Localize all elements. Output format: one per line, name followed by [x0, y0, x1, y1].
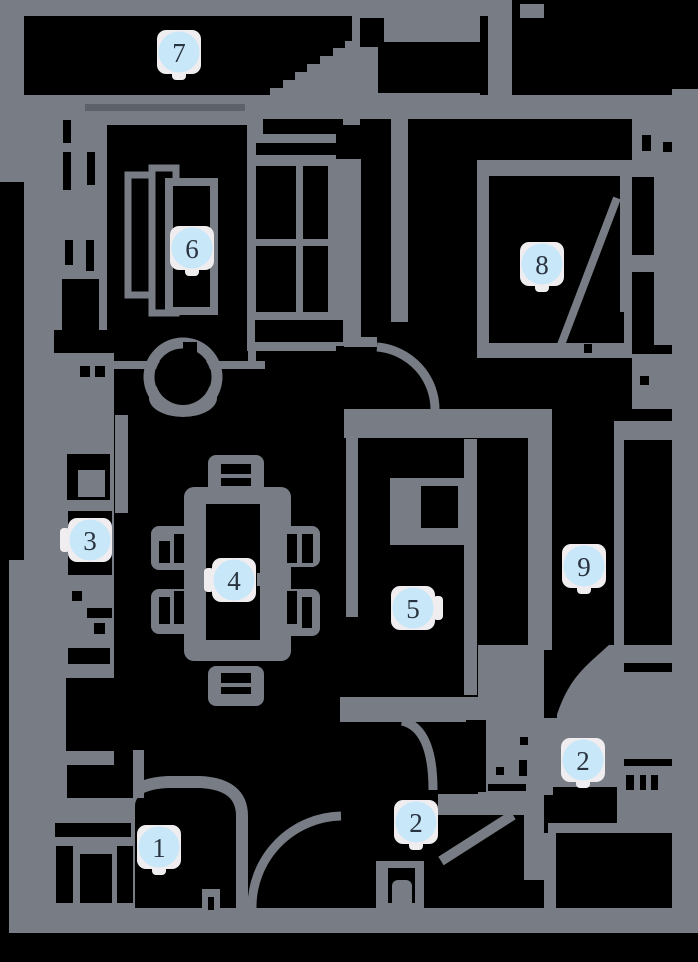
svg-text:9: 9	[577, 552, 591, 582]
svg-text:2: 2	[409, 808, 423, 838]
svg-text:6: 6	[185, 234, 199, 264]
svg-text:5: 5	[406, 594, 420, 624]
svg-text:1: 1	[152, 833, 166, 863]
svg-text:7: 7	[172, 38, 186, 68]
svg-text:2: 2	[576, 746, 590, 776]
svg-text:4: 4	[227, 566, 241, 596]
svg-text:3: 3	[83, 526, 97, 556]
svg-text:8: 8	[535, 250, 549, 280]
